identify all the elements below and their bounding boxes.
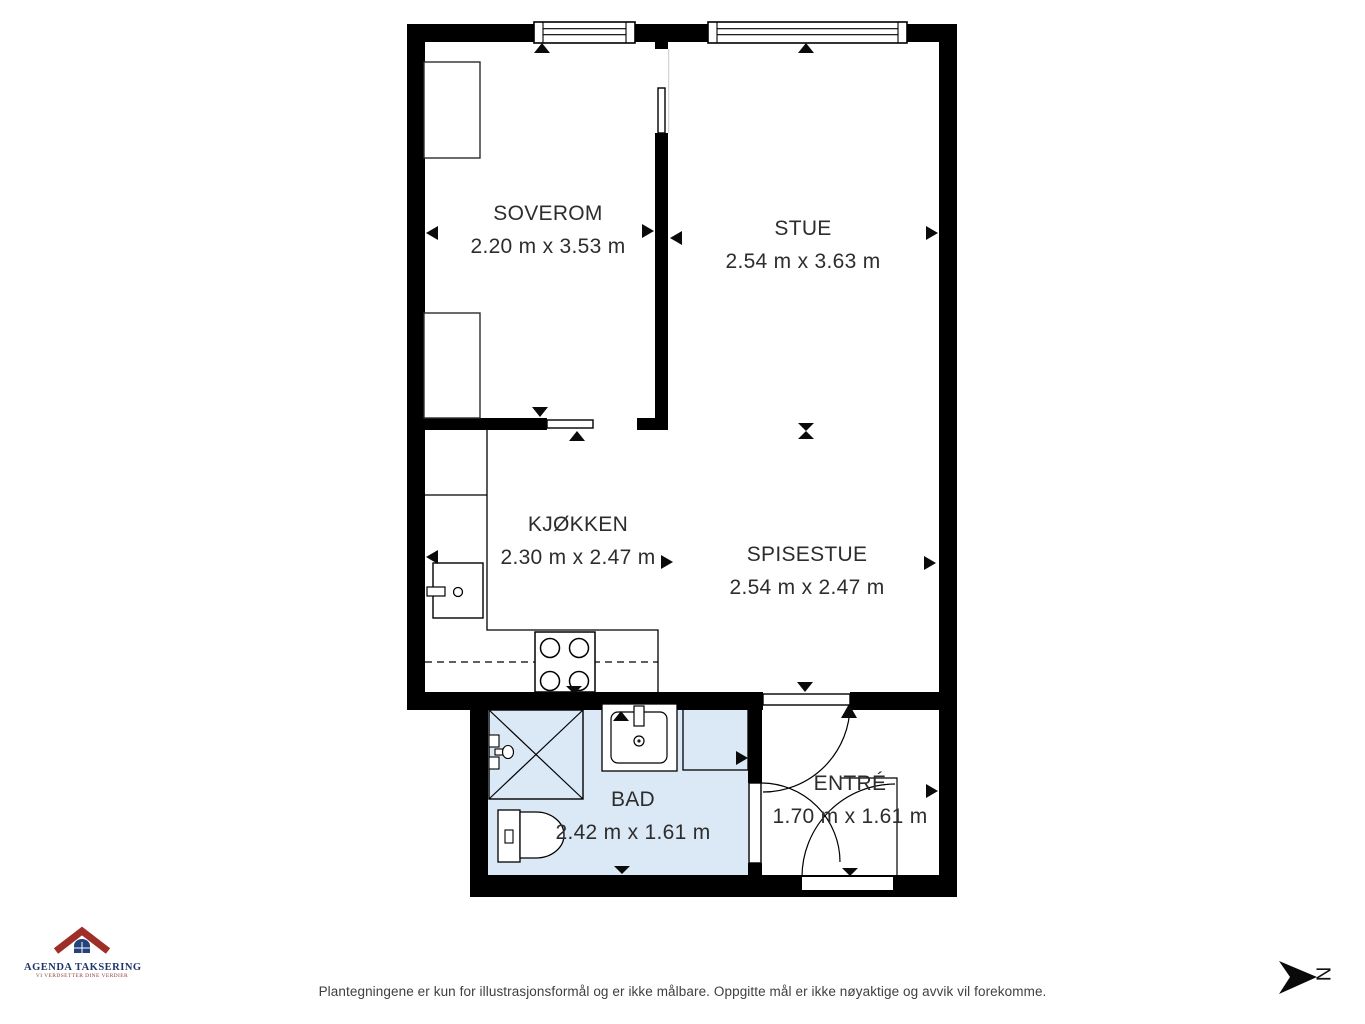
logo-tagline: VI VERDSETTER DINE VERDIER [24, 973, 140, 979]
disclaimer-text: Plantegningene er kun for illustrasjonsf… [0, 984, 1365, 999]
measure-arrow-icon [926, 226, 938, 240]
floorplan-drawing [0, 0, 1365, 1024]
sliding-door-icon [547, 420, 593, 428]
wardrobe-icon [424, 62, 480, 158]
measure-arrow-icon [798, 431, 814, 439]
wall-partition-stub [655, 42, 668, 49]
measure-arrow-icon [798, 43, 814, 53]
room-dims: 2.54 m x 2.47 m [729, 571, 884, 604]
floorplan-page: SOVEROM 2.20 m x 3.53 m STUE 2.54 m x 3.… [0, 0, 1365, 1024]
room-label-spisestue: SPISESTUE 2.54 m x 2.47 m [729, 538, 884, 604]
room-dims: 1.70 m x 1.61 m [772, 800, 927, 833]
wall-soverom-bottom [407, 418, 547, 430]
measure-arrow-icon [532, 407, 548, 417]
logo: AGENDA TAKSERING VI VERDSETTER DINE VERD… [24, 922, 140, 979]
room-name: SPISESTUE [729, 538, 884, 571]
sink-icon [602, 704, 677, 771]
wall-mid-right [850, 692, 957, 710]
wall-partition [655, 133, 668, 430]
entrance-door-gap [802, 877, 893, 890]
measure-arrow-icon [426, 550, 438, 564]
measure-arrow-icon [426, 226, 438, 240]
measure-arrow-icon [924, 556, 936, 570]
wall-right [939, 24, 957, 897]
wall-left [407, 24, 425, 710]
room-name: KJØKKEN [500, 508, 655, 541]
room-name: SOVEROM [470, 197, 625, 230]
north-label: N [1311, 967, 1334, 981]
room-name: ENTRÉ [772, 767, 927, 800]
measure-arrow-icon [534, 43, 550, 53]
room-dims: 2.20 m x 3.53 m [470, 230, 625, 263]
room-dims: 2.30 m x 2.47 m [500, 541, 655, 574]
room-label-kjokken: KJØKKEN 2.30 m x 2.47 m [500, 508, 655, 574]
window-icon [534, 22, 635, 43]
measure-arrow-icon [842, 868, 858, 876]
pocket-door-icon [658, 88, 665, 133]
wall-bath-left [470, 710, 488, 897]
wall-mid-left [407, 692, 763, 710]
room-label-entre: ENTRÉ 1.70 m x 1.61 m [772, 767, 927, 833]
measure-arrow-icon [797, 682, 813, 692]
logo-house-icon [24, 922, 140, 956]
oven-icon [427, 563, 483, 618]
window-icons [534, 22, 907, 43]
room-label-soverom: SOVEROM 2.20 m x 3.53 m [470, 197, 625, 263]
measure-arrow-icon [670, 231, 682, 245]
measure-arrow-icon [569, 431, 585, 441]
logo-title: AGENDA TAKSERING [24, 962, 140, 973]
wall-entre-left-upper [748, 705, 762, 783]
stove-icon [535, 632, 595, 692]
room-name: STUE [725, 212, 880, 245]
measure-arrow-icon [798, 423, 814, 431]
room-dims: 2.42 m x 1.61 m [555, 816, 710, 849]
room-label-bad: BAD 2.42 m x 1.61 m [555, 783, 710, 849]
measure-arrow-icon [926, 784, 938, 798]
wardrobe-icon [424, 313, 480, 418]
window-icon [708, 22, 907, 43]
room-name: BAD [555, 783, 710, 816]
measure-arrow-icon [642, 224, 654, 238]
compass: N [1270, 950, 1360, 1010]
room-label-stue: STUE 2.54 m x 3.63 m [725, 212, 880, 278]
measure-arrow-icon [661, 555, 673, 569]
wall-entre-left-lower [748, 863, 762, 877]
room-dims: 2.54 m x 3.63 m [725, 245, 880, 278]
